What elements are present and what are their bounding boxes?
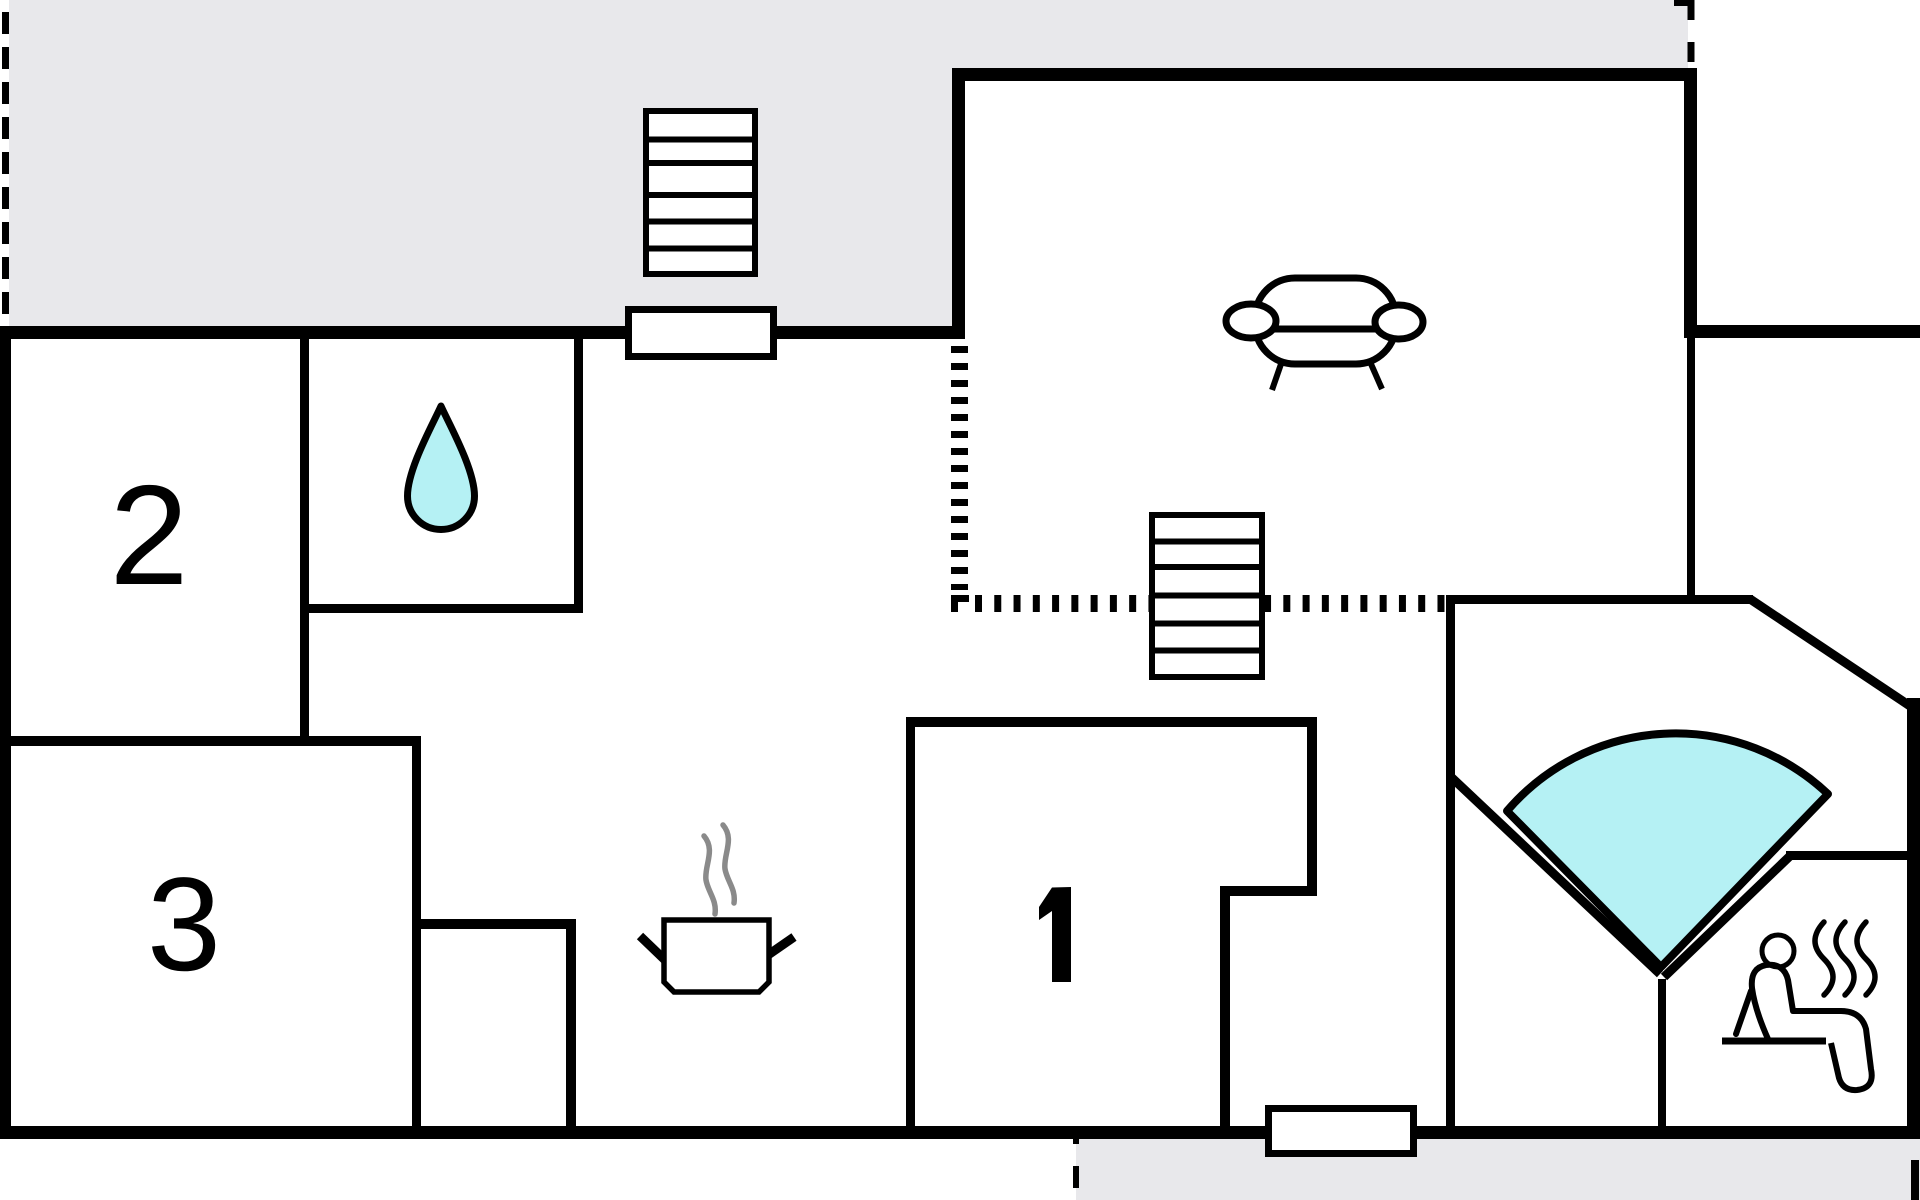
svg-text:2: 2: [110, 456, 189, 615]
svg-text:3: 3: [147, 851, 221, 999]
